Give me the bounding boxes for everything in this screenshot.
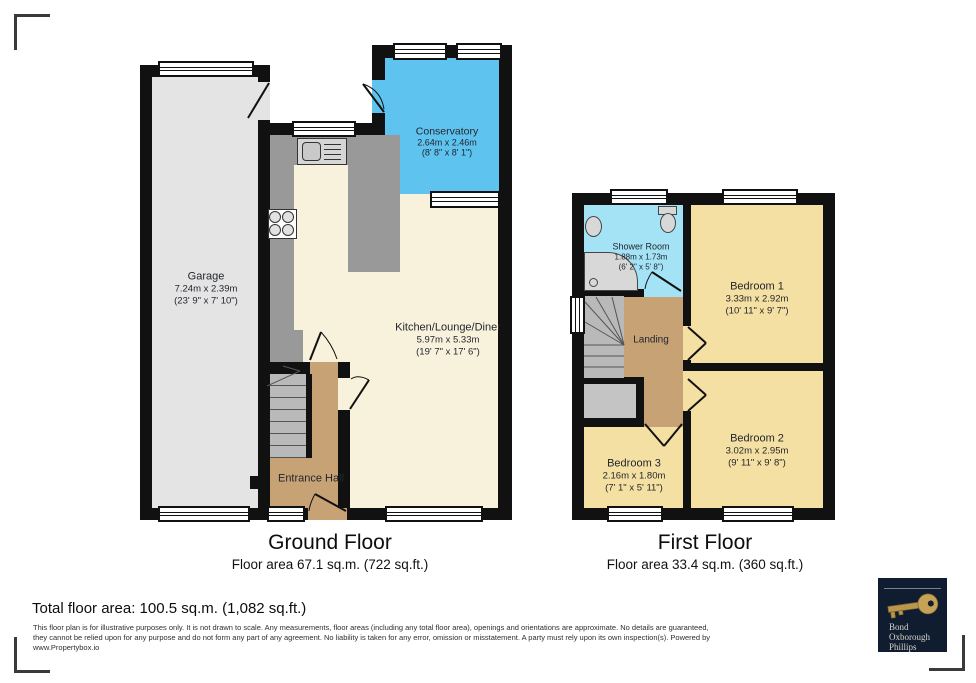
first-floor-area: Floor area 33.4 sq.m. (360 sq.ft.): [607, 557, 804, 572]
window: [158, 61, 254, 77]
window: [158, 506, 250, 522]
bedroom1-bedroom2-wall: [683, 363, 835, 371]
ground-stairs-wall: [306, 374, 312, 458]
lounge-door-opening: [338, 378, 350, 410]
garage-label: Garage 7.24m x 2.39m (23' 9" x 7' 10"): [174, 271, 238, 308]
hob-ring-icon: [269, 211, 281, 223]
shower-room-label: Shower Room 1.88m x 1.73m (6' 2" x 5' 8"…: [612, 242, 669, 273]
sink-drainer-icon: [324, 144, 341, 145]
landing-label: Landing: [633, 334, 669, 347]
disclaimer-line-2: they cannot be relied upon for any purpo…: [33, 633, 710, 643]
conservatory-label: Conservatory 2.64m x 2.46m (8' 8" x 8' 1…: [416, 127, 478, 158]
landing-bedroom2-wall: [683, 411, 691, 508]
agency-logo: Bond Oxborough Phillips: [878, 578, 947, 652]
ground-floor-title: Ground Floor: [268, 531, 392, 555]
window: [267, 506, 305, 522]
logo-divider: [884, 588, 941, 589]
window: [570, 296, 585, 334]
disclaimer-link: www.Propertybox.io: [33, 643, 99, 653]
landing-room-lower: [644, 378, 683, 427]
window: [430, 191, 500, 208]
hob-ring-icon: [282, 211, 294, 223]
window: [610, 189, 668, 205]
bedroom-3-label: Bedroom 3 2.16m x 1.80m (7' 1" x 5' 11"): [603, 458, 666, 495]
ground-floor-area: Floor area 67.1 sq.m. (722 sq.ft.): [232, 557, 429, 572]
sink-drainer-icon: [324, 149, 341, 150]
ground-stairs: [270, 374, 306, 458]
window: [722, 189, 798, 205]
landing-bedroom1-wall: [683, 205, 691, 326]
corner-bracket-top-left: [14, 14, 50, 50]
bedroom-1-label: Bedroom 1 3.33m x 2.92m (10' 11" x 9' 7"…: [725, 281, 788, 318]
conservatory-door-opening: [372, 80, 385, 113]
agency-name: Bond Oxborough Phillips: [889, 622, 930, 652]
wall-pier: [250, 476, 265, 489]
shower-door-opening: [644, 289, 683, 297]
hob-ring-icon: [282, 224, 294, 236]
sink-drainer-icon: [324, 154, 341, 155]
kitchen-door-opening: [310, 362, 338, 374]
window: [393, 43, 447, 60]
basin-icon: [585, 216, 602, 237]
stairs-bottom-wall: [584, 377, 640, 384]
stairs-cupboard: [584, 384, 636, 418]
kitchen-lounge-diner-label: Kitchen/Lounge/Diner 5.97m x 5.33m (19' …: [395, 322, 501, 359]
window: [607, 506, 663, 522]
front-door-opening: [308, 508, 347, 520]
sink-drainer-icon: [324, 159, 341, 160]
entrance-hall-label: Entrance Hall: [278, 473, 344, 486]
floorplan-page: Garage 7.24m x 2.39m (23' 9" x 7' 10") C…: [0, 0, 976, 683]
bedroom1-door-opening: [683, 326, 691, 360]
counter-column: [348, 135, 400, 272]
bedroom-2-label: Bedroom 2 3.02m x 2.95m (9' 11" x 9' 8"): [726, 433, 789, 470]
sink-basin-icon: [302, 142, 321, 161]
counter-end: [270, 330, 303, 362]
window: [385, 506, 483, 522]
window: [292, 121, 356, 137]
shower-drain-icon: [589, 278, 598, 287]
window: [456, 43, 502, 60]
bedroom3-top-wall: [572, 418, 644, 427]
hall-right-wall-lower: [338, 410, 350, 508]
disclaimer-line-1: This floor plan is for illustrative purp…: [33, 623, 709, 633]
counter-left: [270, 165, 294, 330]
hall-top-wall: [258, 362, 310, 374]
key-icon: [884, 592, 942, 620]
first-floor-stairs: [584, 296, 624, 378]
toilet-bowl-icon: [660, 213, 676, 233]
window: [722, 506, 794, 522]
hob-ring-icon: [269, 224, 281, 236]
bedroom2-door-opening: [683, 371, 691, 411]
total-floor-area: Total floor area: 100.5 sq.m. (1,082 sq.…: [32, 600, 306, 617]
first-floor-title: First Floor: [658, 531, 753, 555]
garage-door-opening: [258, 82, 270, 120]
hall-right-wall-upper: [338, 362, 350, 378]
